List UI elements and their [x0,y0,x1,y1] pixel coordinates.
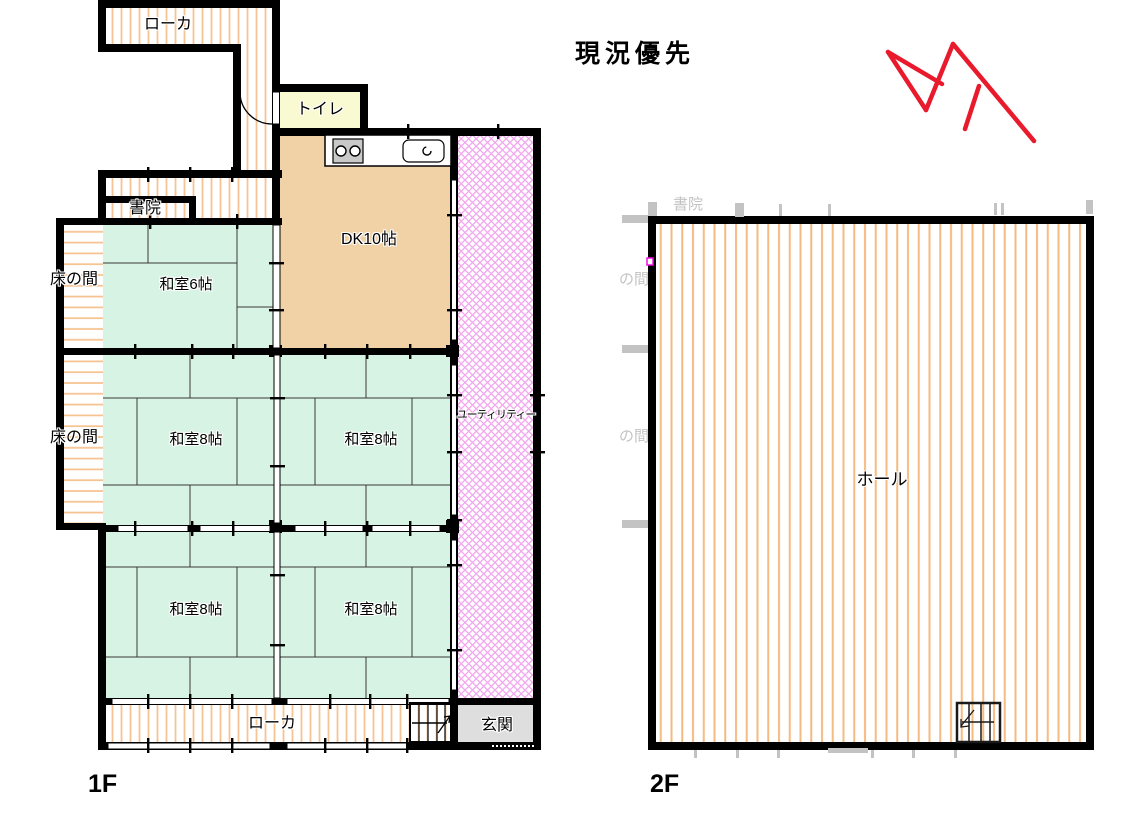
room-label-genkan: 玄関 [481,718,513,734]
floorplan-graphics [0,0,1134,837]
annotation-genkyo-yusen: 現況優先 [575,42,695,67]
room-label-washitsu8-mid-left: 和室8帖 [169,432,222,447]
ghost-label-noma-upper: の間 [619,272,649,287]
floor2-label: 2F [650,772,679,797]
ghost-label-noma-lower: の間 [619,429,649,444]
room-label-corridor-bottom: ローカ [248,716,296,732]
room-label-washitsu8-bottom-right: 和室8帖 [344,602,397,617]
room-label-washitsu8-bottom-left: 和室8帖 [169,602,222,617]
floorplan-page: 現況優先 ローカ トイレ 書院 床の間 床の間 和室6帖 DK10帖 和室8帖 … [0,0,1134,837]
room-label-toilet: トイレ [296,102,344,118]
red-check-mark [888,44,1034,141]
room-label-corridor-top: ローカ [144,17,192,33]
stove-symbol [333,139,363,163]
kitchen-counter [325,135,451,166]
room-label-utility: ユーティリティー [457,410,536,421]
ghost-label-shoin: 書院 [673,197,703,212]
room-label-shoin: 書院 [129,201,161,217]
magenta-dot-mark [647,258,653,265]
room-label-hall: ホール [857,471,908,488]
room-label-dk: DK10帖 [341,232,397,248]
room-label-washitsu6: 和室6帖 [159,277,212,292]
room-label-tokonoma-upper: 床の間 [50,272,98,288]
floor1-label: 1F [88,772,117,797]
sink-symbol [403,140,444,162]
room-label-washitsu8-mid-right: 和室8帖 [344,432,397,447]
room-label-tokonoma-lower: 床の間 [50,430,98,446]
